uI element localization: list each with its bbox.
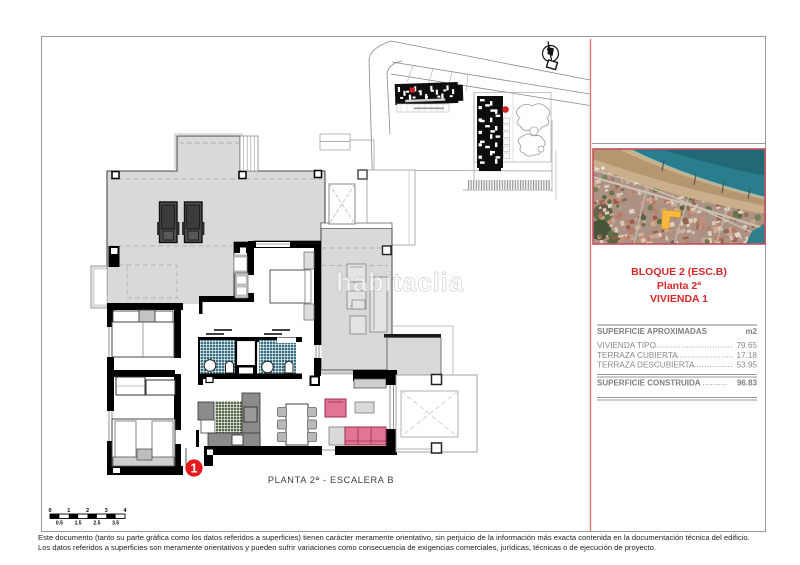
- svg-text:53.95: 53.95: [737, 361, 758, 370]
- svg-text:m2: m2: [745, 327, 757, 336]
- svg-text:0.5: 0.5: [56, 521, 63, 527]
- svg-text:VIVIENDA 1: VIVIENDA 1: [650, 293, 708, 305]
- svg-text:3.5: 3.5: [112, 521, 119, 527]
- svg-text:2.5: 2.5: [93, 521, 100, 527]
- svg-text:2: 2: [86, 508, 89, 514]
- svg-text:TERRAZA CUBIERTA: TERRAZA CUBIERTA: [597, 351, 678, 360]
- svg-text:Planta 2ª: Planta 2ª: [657, 280, 701, 292]
- svg-text:Este documento (tanto su parte: Este documento (tanto su parte gráfica c…: [38, 533, 750, 542]
- svg-text:17.18: 17.18: [737, 351, 758, 360]
- svg-text:79.65: 79.65: [737, 341, 758, 350]
- svg-text:SUPERFICIE CONSTRUIDA: SUPERFICIE CONSTRUIDA: [597, 379, 701, 388]
- svg-text:PLANTA 2ª - ESCALERA B: PLANTA 2ª - ESCALERA B: [268, 475, 394, 485]
- svg-text:96.83: 96.83: [737, 379, 758, 388]
- svg-text:habitaclia: habitaclia: [336, 267, 464, 297]
- svg-text:BLOQUE 2 (ESC.B): BLOQUE 2 (ESC.B): [631, 266, 727, 278]
- svg-text:TERRAZA DESCUBIERTA: TERRAZA DESCUBIERTA: [597, 361, 695, 370]
- svg-text:VIVIENDA TIPO: VIVIENDA TIPO: [597, 341, 656, 350]
- svg-text:1.5: 1.5: [75, 521, 82, 527]
- svg-text:0: 0: [48, 508, 51, 514]
- svg-text:3: 3: [105, 508, 108, 514]
- svg-text:1: 1: [67, 508, 70, 514]
- svg-text:SUPERFICIE APROXIMADAS: SUPERFICIE APROXIMADAS: [597, 327, 708, 336]
- svg-text:1: 1: [191, 462, 198, 476]
- svg-text:Los datos referidos a superfic: Los datos referidos a superficies son me…: [38, 543, 656, 552]
